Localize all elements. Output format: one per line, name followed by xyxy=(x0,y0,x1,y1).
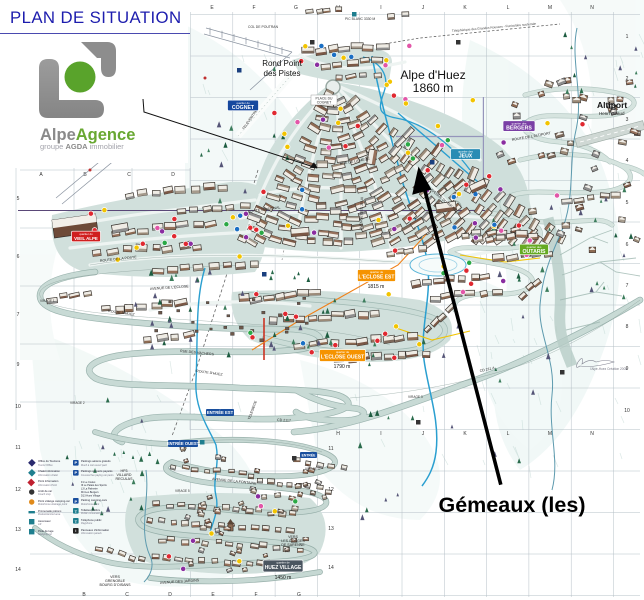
svg-text:P: P xyxy=(74,499,77,504)
svg-text:OUTARIS: OUTARIS xyxy=(523,249,546,255)
svg-text:ENTRÉE OUEST: ENTRÉE OUEST xyxy=(167,441,200,446)
svg-text:M: M xyxy=(548,431,552,437)
svg-text:P: P xyxy=(74,460,77,465)
svg-text:C: C xyxy=(127,172,131,178)
svg-text:11: 11 xyxy=(328,446,333,452)
svg-text:13: 13 xyxy=(15,527,21,533)
svg-text:Much à ciel ouvert park: Much à ciel ouvert park xyxy=(81,464,108,467)
svg-text:13: 13 xyxy=(328,526,334,532)
svg-text:VIEIL ALPE: VIEIL ALPE xyxy=(74,236,98,241)
svg-text:H: H xyxy=(336,431,340,437)
svg-text:Sledging run: Sledging run xyxy=(38,533,53,536)
svg-text:Tourist Office: Tourist Office xyxy=(38,464,53,467)
svg-text:14: 14 xyxy=(15,567,21,573)
svg-text:8: 8 xyxy=(626,324,629,330)
svg-text:7: 7 xyxy=(17,312,20,318)
svg-text:Parking camping-cars: Parking camping-cars xyxy=(81,498,108,502)
svg-text:PIC BLANC 3330 M: PIC BLANC 3330 M xyxy=(345,17,375,21)
svg-text:6: 6 xyxy=(626,242,629,248)
svg-text:Office du Tourisme: Office du Tourisme xyxy=(38,459,61,463)
svg-text:I: I xyxy=(380,431,381,437)
svg-text:10: 10 xyxy=(15,404,21,410)
svg-text:JEUX: JEUX xyxy=(459,154,473,160)
svg-text:1815 m: 1815 m xyxy=(368,284,385,290)
svg-text:Information Point: Information Point xyxy=(38,484,57,487)
svg-text:Rond Point: Rond Point xyxy=(262,59,302,68)
svg-text:N: N xyxy=(590,5,594,11)
svg-text:HUEZ VILLAGE: HUEZ VILLAGE xyxy=(265,565,302,571)
svg-text:VIRAGE 5: VIRAGE 5 xyxy=(175,489,190,493)
svg-text:1: 1 xyxy=(626,34,629,40)
svg-text:14: 14 xyxy=(328,565,334,571)
svg-text:Chalet information: Chalet information xyxy=(38,469,60,473)
svg-text:COGNET: COGNET xyxy=(317,101,332,105)
svg-text:Motorhome park: Motorhome park xyxy=(81,503,100,506)
svg-text:11: 11 xyxy=(15,445,20,451)
svg-text:l'Alpe-Huez Création 2005: l'Alpe-Huez Création 2005 xyxy=(590,367,627,371)
svg-text:Parkings aériens gratuits: Parkings aériens gratuits xyxy=(81,459,111,463)
svg-text:Lift: Lift xyxy=(38,523,42,526)
svg-text:COL DE POUTRAN: COL DE POUTRAN xyxy=(248,25,279,29)
svg-text:BOURG D'OISANS: BOURG D'OISANS xyxy=(99,583,131,587)
svg-text:D13 Huez Village: D13 Huez Village xyxy=(81,494,101,497)
svg-text:Payphone: Payphone xyxy=(81,522,93,525)
svg-text:VIRAGE 3: VIRAGE 3 xyxy=(408,395,423,399)
svg-text:i: i xyxy=(75,528,76,533)
svg-text:10: 10 xyxy=(624,408,630,414)
svg-text:Pedestrianized area: Pedestrianized area xyxy=(38,513,61,516)
svg-text:4: 4 xyxy=(626,158,629,164)
svg-text:F: F xyxy=(254,592,257,598)
svg-text:Motorhome drainage point: Motorhome drainage point xyxy=(38,503,67,506)
svg-text:N: N xyxy=(590,431,594,437)
svg-text:Gémeaux (les): Gémeaux (les) xyxy=(439,493,586,517)
svg-text:Coach stop: Coach stop xyxy=(38,493,51,496)
svg-text:Altiport: Altiport xyxy=(597,100,627,110)
svg-text:RECULAS: RECULAS xyxy=(116,477,134,481)
svg-text:L'ECLOSE OUEST: L'ECLOSE OUEST xyxy=(321,354,364,360)
svg-text:L: L xyxy=(507,431,510,437)
svg-text:Covered fee paying car parks: Covered fee paying car parks xyxy=(81,474,114,477)
svg-text:5: 5 xyxy=(626,200,629,206)
svg-text:P: P xyxy=(74,470,77,475)
svg-text:des Pistes: des Pistes xyxy=(264,69,301,78)
svg-text:3: 3 xyxy=(626,117,629,123)
svg-text:Henri Giraud: Henri Giraud xyxy=(599,111,625,116)
svg-text:D: D xyxy=(171,172,175,178)
svg-text:12: 12 xyxy=(15,487,21,493)
svg-text:C: C xyxy=(125,592,129,598)
svg-text:COGNET: COGNET xyxy=(232,105,255,111)
svg-text:G: G xyxy=(294,5,298,11)
svg-text:I: I xyxy=(380,5,381,11)
svg-text:G: G xyxy=(297,592,301,598)
svg-text:VIRAGE 4: VIRAGE 4 xyxy=(305,467,320,471)
svg-text:L: L xyxy=(507,5,510,11)
svg-text:groupe AGDA immobilier: groupe AGDA immobilier xyxy=(40,142,124,151)
svg-text:Point Information: Point Information xyxy=(38,479,59,483)
svg-text:L'ECLOSE EST: L'ECLOSE EST xyxy=(359,274,395,280)
svg-text:Information panels: Information panels xyxy=(81,532,102,535)
svg-text:Parkings couverts payants: Parkings couverts payants xyxy=(81,469,113,473)
svg-text:DE SARENNE: DE SARENNE xyxy=(281,543,305,547)
svg-text:BERGERS: BERGERS xyxy=(506,126,532,132)
svg-text:F: F xyxy=(252,5,255,11)
svg-text:VIRAGE 2: VIRAGE 2 xyxy=(70,401,85,405)
svg-text:PLAN DE SITUATION: PLAN DE SITUATION xyxy=(10,8,182,27)
svg-text:Information chalet: Information chalet xyxy=(38,474,58,477)
svg-text:7: 7 xyxy=(626,283,629,289)
svg-text:9: 9 xyxy=(17,362,20,368)
svg-text:ENTRÉE: ENTRÉE xyxy=(302,453,316,458)
svg-text:1860 m: 1860 m xyxy=(413,81,454,95)
svg-text:Alpe d'Huez: Alpe d'Huez xyxy=(400,68,465,82)
svg-text:6: 6 xyxy=(17,254,20,260)
svg-text:ENTRÉE EST: ENTRÉE EST xyxy=(207,410,234,415)
svg-text:CD 2117: CD 2117 xyxy=(277,418,291,423)
svg-text:1450 m: 1450 m xyxy=(275,575,292,581)
svg-text:5: 5 xyxy=(17,196,20,202)
svg-text:Public conveniences: Public conveniences xyxy=(81,512,105,515)
svg-text:M: M xyxy=(548,5,552,11)
svg-text:1790 m: 1790 m xyxy=(334,364,351,370)
svg-text:D: D xyxy=(168,592,172,598)
svg-text:VIRAGE 1: VIRAGE 1 xyxy=(40,299,55,303)
